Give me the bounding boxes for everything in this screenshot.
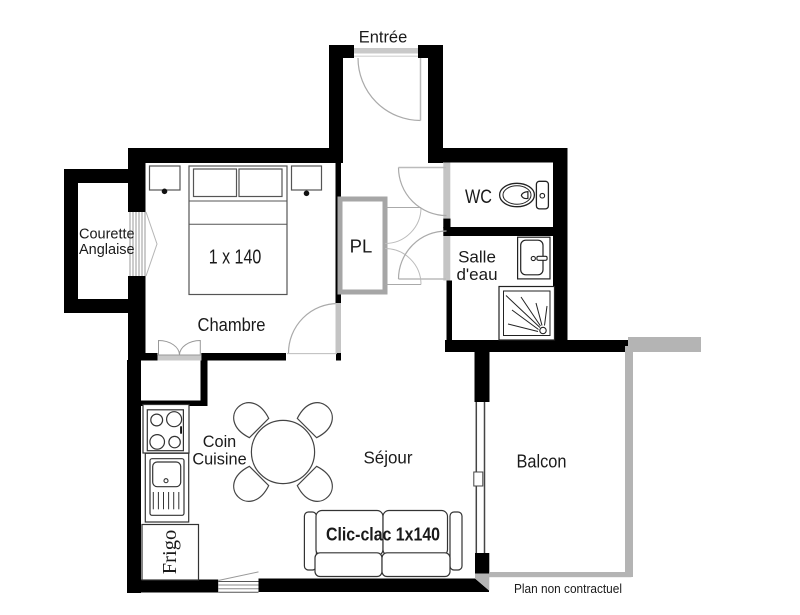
svg-text:Plan non contractuel: Plan non contractuel bbox=[514, 581, 622, 596]
svg-text:Chambre: Chambre bbox=[198, 314, 266, 335]
svg-text:Entrée: Entrée bbox=[359, 28, 408, 47]
svg-text:Frigo: Frigo bbox=[159, 530, 181, 574]
svg-text:d'eau: d'eau bbox=[456, 265, 497, 284]
svg-text:WC: WC bbox=[465, 186, 492, 208]
svg-text:Coin: Coin bbox=[203, 433, 237, 451]
svg-text:1 x 140: 1 x 140 bbox=[209, 247, 262, 269]
svg-text:Séjour: Séjour bbox=[364, 448, 413, 468]
svg-text:Anglaise: Anglaise bbox=[79, 242, 135, 258]
svg-text:Courette: Courette bbox=[79, 227, 135, 243]
svg-text:Clic-clac 1x140: Clic-clac 1x140 bbox=[326, 524, 440, 545]
svg-text:PL: PL bbox=[350, 236, 373, 257]
svg-text:Salle: Salle bbox=[458, 248, 496, 267]
svg-text:Balcon: Balcon bbox=[517, 452, 567, 472]
svg-text:Cuisine: Cuisine bbox=[192, 451, 246, 469]
